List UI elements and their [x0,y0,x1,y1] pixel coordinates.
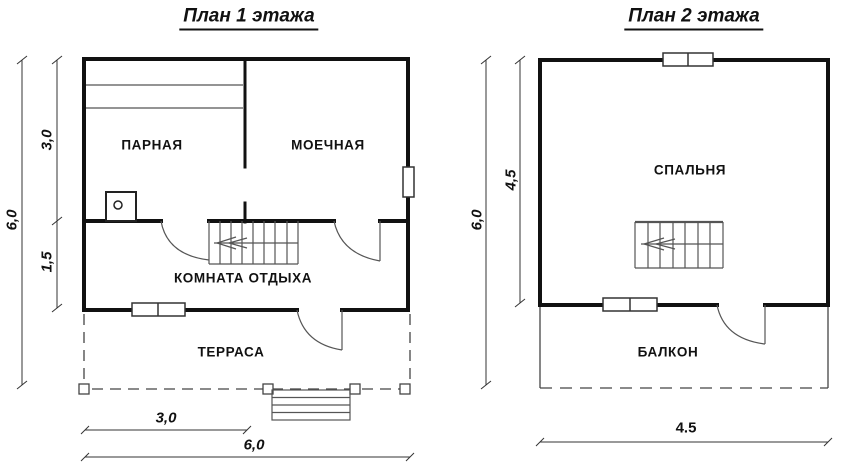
room-label-rest-room: КОМНАТА ОТДЫХА [174,271,312,286]
floor1-title: План 1 этажа [179,6,318,31]
room-label-balcony: БАЛКОН [638,345,699,360]
bench-lines [86,85,243,108]
dim-floor1-left-total: 6,0 [4,210,21,231]
floor1-stairs-icon [209,221,298,264]
dim-floor2-bottom-width: 4.5 [676,420,697,437]
door-swing-arc [161,221,209,260]
floor1-windows [132,167,414,316]
room-label-terrace: ТЕРРАСА [198,345,265,360]
door-swing-arc [297,310,342,350]
room-label-steam-room: ПАРНАЯ [121,138,182,153]
floor1-plan-drawing [17,56,414,461]
floor-plan-sheet: План 1 этажа План 2 этажа ПАРНАЯ МОЕЧНАЯ… [0,0,850,469]
dim-floor2-left-total: 6,0 [469,210,486,231]
floor2-title: План 2 этажа [624,6,763,31]
dim-floor1-left-lower: 1,5 [39,252,56,273]
floor1-dimension-lines [17,56,414,461]
stove-icon [106,192,136,221]
floor2-plan-drawing [481,53,832,446]
door-swing-arc [334,221,380,261]
floor1-doors [161,221,380,350]
dim-floor1-bottom-total: 6,0 [244,437,265,454]
room-label-bedroom: СПАЛЬНЯ [654,163,726,178]
window-symbol [403,167,414,197]
door-swing-arc [717,305,765,344]
floor2-stairs-icon [635,222,723,268]
floorplan-linework [0,0,850,469]
room-label-washing-room: МОЕЧНАЯ [291,138,365,153]
floor2-dimension-lines [481,56,832,446]
dim-floor1-left-upper: 3,0 [39,130,56,151]
dim-floor2-left-room: 4,5 [503,170,520,191]
dim-floor1-bottom-partial: 3,0 [156,410,177,427]
floor2-windows [603,53,713,311]
entrance-steps [272,390,350,420]
floor2-doors [717,305,765,344]
